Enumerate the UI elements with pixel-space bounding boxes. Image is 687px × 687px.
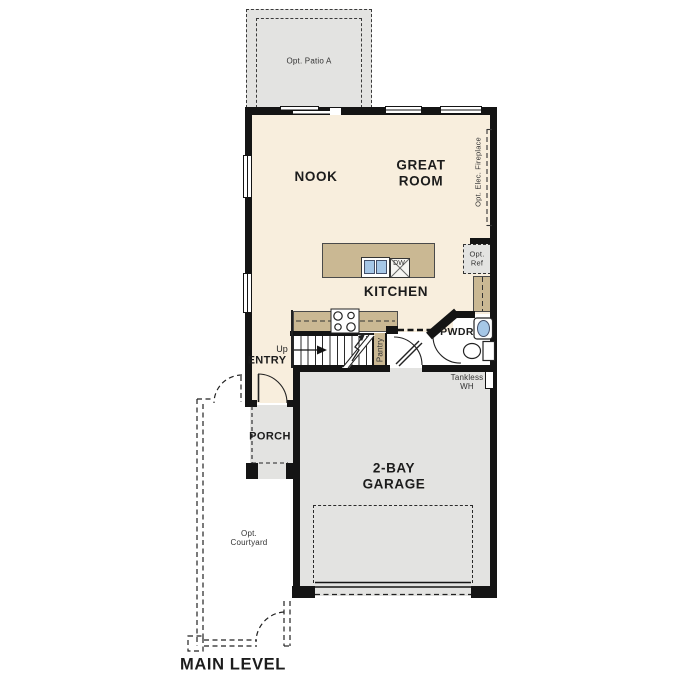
label-garage: 2-BAY GARAGE	[361, 460, 427, 491]
label-pwdr: PWDR	[440, 326, 474, 338]
label-opt-courtyard: Opt. Courtyard	[225, 529, 273, 547]
label-entry: ENTRY	[248, 355, 287, 368]
wall-garage-bottom-right	[471, 586, 497, 598]
wall-garage-top-left	[293, 365, 390, 372]
slider-door-panel-inner	[292, 110, 331, 115]
plan-title: MAIN LEVEL	[180, 656, 286, 675]
garage-parking-outline	[313, 505, 473, 583]
stair-top-line	[358, 333, 373, 335]
porch-pier-left	[246, 463, 258, 479]
label-great-room: GREAT ROOM	[384, 157, 458, 188]
nook-window-1	[243, 155, 252, 198]
label-porch: PORCH	[249, 431, 291, 444]
wall-right	[490, 107, 497, 598]
label-nook: NOOK	[295, 169, 338, 185]
great-room-window-2	[440, 106, 482, 114]
label-tankless-wh: Tankless WH	[445, 373, 489, 391]
wall-garage-bottom-left	[292, 586, 315, 598]
wall-entry-south-left	[245, 400, 257, 407]
wall-hall-stub	[386, 326, 398, 334]
wall-ref-stub	[470, 238, 490, 244]
wall-under-counter	[290, 331, 358, 336]
label-pantry: Pantry	[375, 338, 384, 362]
courtyard-gate-top-arc	[214, 375, 242, 403]
label-kitchen: KITCHEN	[364, 284, 428, 300]
wall-pwdr-top	[453, 311, 475, 318]
ref-counter	[473, 276, 491, 312]
label-opt-ref: Opt. Ref	[466, 250, 488, 267]
patio-door-opening	[330, 107, 341, 115]
kitchen-counter	[293, 311, 398, 332]
label-opt-fireplace: Opt. Elec. Fireplace	[475, 137, 484, 207]
island-sink-basin-left	[364, 260, 375, 274]
courtyard-gate-bottom-arc	[256, 612, 284, 642]
label-opt-patio: Opt. Patio A	[286, 56, 331, 65]
label-dw: DW	[393, 260, 405, 268]
main-floor	[249, 112, 493, 337]
island-sink-basin-right	[376, 260, 387, 274]
label-up: Up	[276, 344, 288, 354]
wall-garage-left	[293, 368, 300, 598]
floor-plan: Opt. Patio A NOOK GREAT ROOM Opt. Elec. …	[0, 0, 687, 687]
stairs	[293, 336, 372, 367]
stair-side-line	[291, 310, 293, 368]
nook-window-2	[243, 273, 252, 313]
great-room-window-1	[385, 106, 422, 114]
